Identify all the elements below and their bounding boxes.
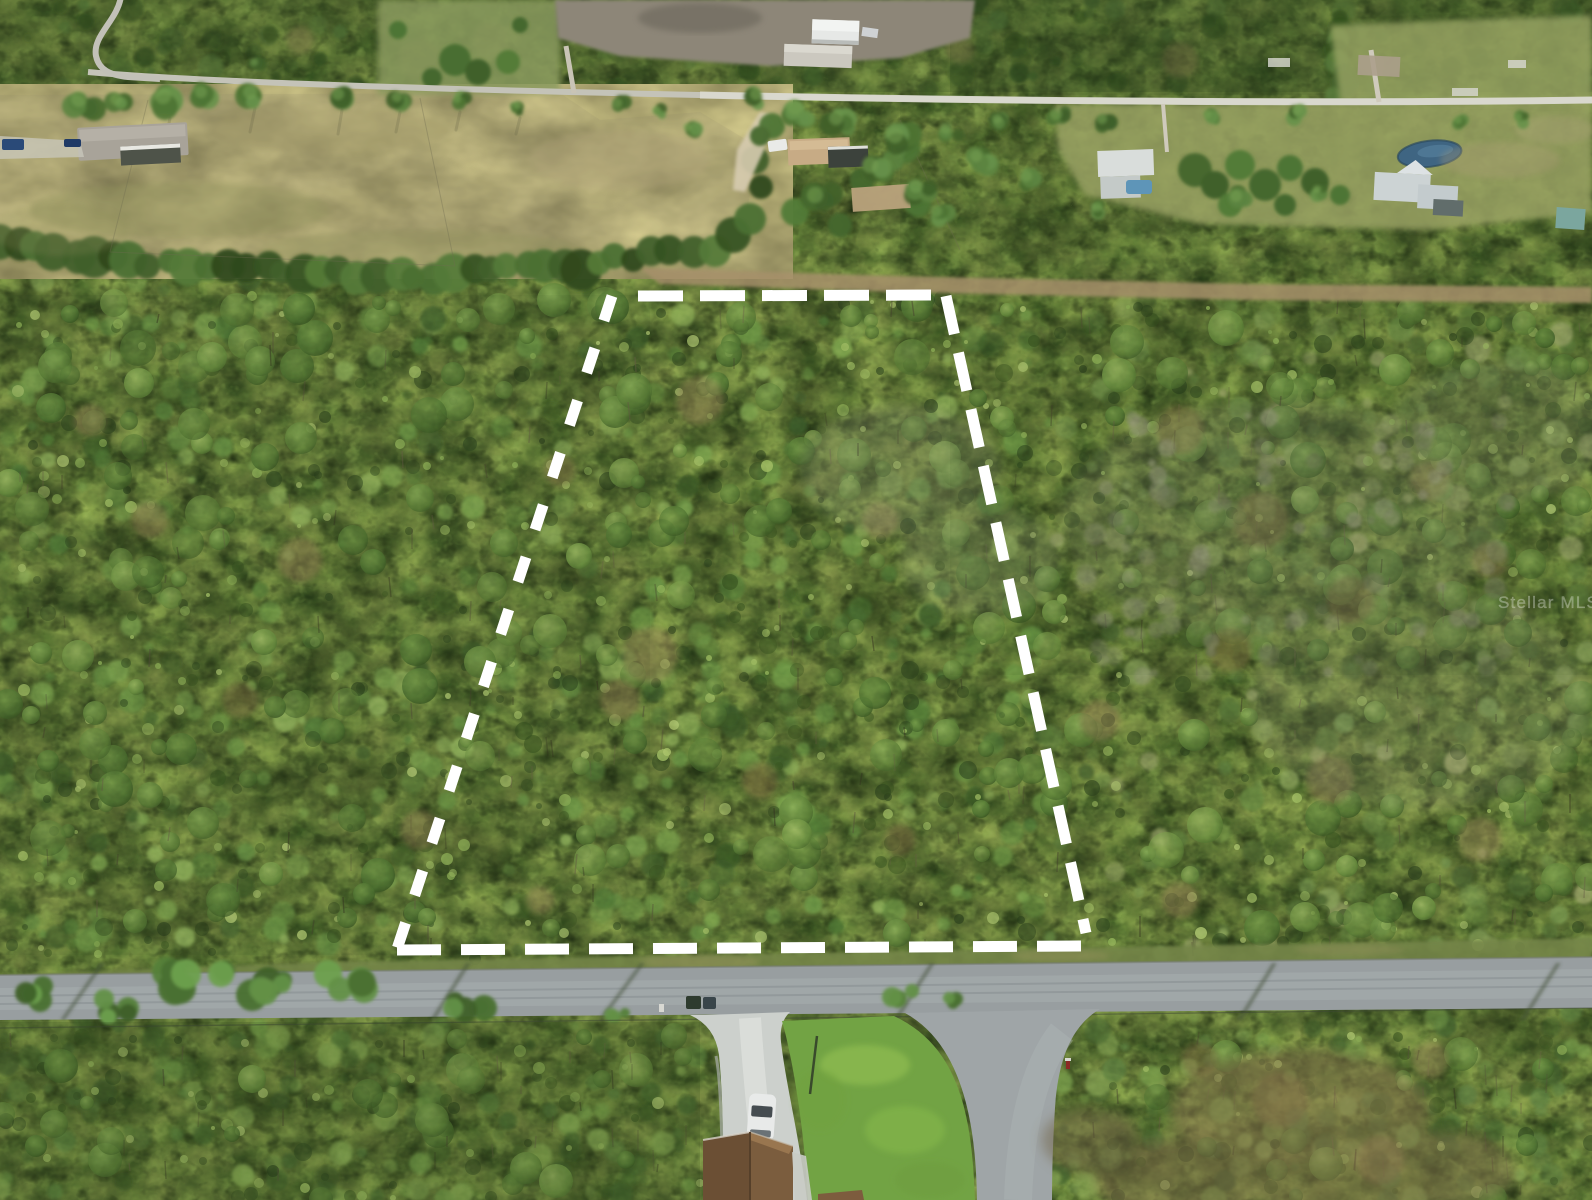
svg-text:Stellar MLS: Stellar MLS xyxy=(1498,593,1592,612)
